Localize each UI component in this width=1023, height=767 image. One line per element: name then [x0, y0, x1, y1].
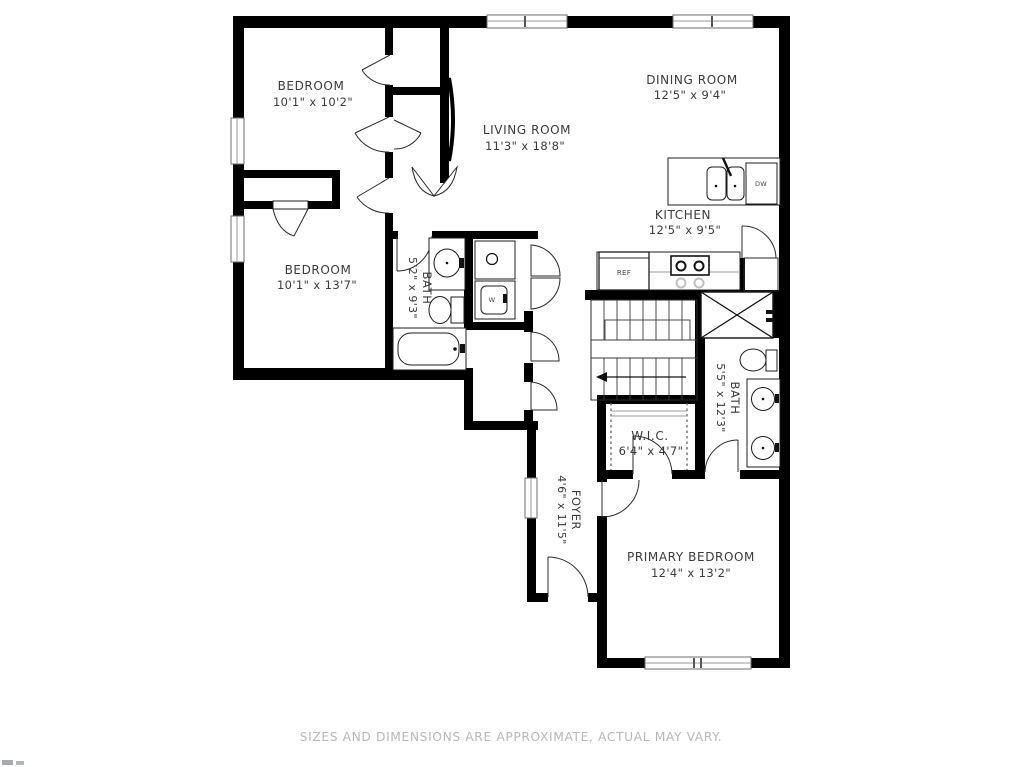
label-bedroom-middle: BEDROOM 10'1" x 13'7" [277, 263, 357, 292]
closet-door-bedroom-top [362, 55, 390, 85]
door-bedroom-middle [357, 178, 389, 213]
doors-laundry-closet [531, 245, 560, 309]
double-vanity-icon [747, 379, 780, 467]
label-bath-primary: BATH 5'5" x 12'3" [714, 363, 742, 432]
room-dims: 12'5" x 9'4" [654, 88, 726, 102]
dryer-icon [475, 241, 515, 279]
bifold-doors-hall-nook [412, 167, 457, 196]
floor-plan-svg: DW REF [0, 0, 1023, 767]
room-dims: 10'1" x 13'7" [277, 278, 357, 292]
toilet-icon [740, 349, 777, 371]
door-primary-bedroom [602, 480, 639, 517]
window-bedroom-middle [231, 216, 244, 262]
dishwasher-icon: DW [746, 163, 777, 204]
room-dims: 12'4" x 13'2" [651, 566, 731, 580]
room-dims: 6'4" x 4'7" [619, 444, 684, 458]
window-top-right [673, 15, 753, 28]
room-name: BEDROOM [278, 79, 345, 93]
room-dims: 11'3" x 18'8" [485, 139, 565, 153]
room-dims: 4'6" x 11'5" [555, 475, 568, 544]
bath-primary-fixtures [701, 292, 780, 467]
kitchen-counter: REF [597, 252, 778, 291]
refrigerator-icon: REF [599, 252, 649, 290]
corner-artifact [2, 760, 24, 765]
label-dining-room: DINING ROOM 12'5" x 9'4" [646, 73, 738, 102]
washer-icon: W [475, 281, 515, 319]
label-kitchen: KITCHEN 12'5" x 9'5" [649, 208, 721, 237]
label-wic: W.I.C. 6'4" x 4'7" [619, 429, 684, 458]
room-dims: 12'5" x 9'5" [649, 223, 721, 237]
room-name: FOYER [569, 490, 583, 530]
dishwasher-label: DW [755, 180, 767, 188]
laundry-closet: W [475, 241, 515, 319]
washer-label: W [489, 296, 496, 304]
door-hall-closet-lower [531, 382, 557, 410]
room-dims: 5'2" x 9'3" [406, 257, 419, 319]
room-dims: 10'1" x 10'2" [273, 95, 353, 109]
stair-direction-arrow-icon [596, 372, 607, 382]
disclaimer-text: SIZES AND DIMENSIONS ARE APPROXIMATE, AC… [300, 730, 723, 744]
room-name: LIVING ROOM [483, 123, 571, 137]
room-name: W.I.C. [631, 429, 668, 443]
room-name: BEDROOM [285, 263, 352, 277]
label-living-room: LIVING ROOM 11'3" x 18'8" [483, 123, 571, 153]
entry-door [548, 557, 588, 597]
room-dims: 5'5" x 12'3" [714, 363, 727, 432]
refrigerator-label: REF [617, 269, 631, 277]
floor-plan-page: DW REF [0, 0, 1023, 767]
door-pantry [742, 226, 776, 258]
room-name: BATH [420, 272, 434, 305]
shower-icon [701, 292, 775, 338]
window-bedroom-top [231, 118, 244, 164]
pantry-closet [744, 258, 778, 291]
window-primary-bedroom [645, 657, 751, 669]
closet-door-bedroom-middle [273, 201, 308, 236]
staircase [591, 300, 697, 400]
label-primary-bedroom: PRIMARY BEDROOM 12'4" x 13'2" [627, 550, 755, 580]
room-name: DINING ROOM [646, 73, 738, 87]
room-name: PRIMARY BEDROOM [627, 550, 755, 564]
bathtub-icon [393, 328, 466, 370]
room-name: BATH [728, 382, 742, 415]
door-hall-closet-upper [531, 332, 559, 361]
window-top-left [487, 15, 567, 28]
label-bedroom-top: BEDROOM 10'1" x 10'2" [273, 79, 353, 109]
wall-curve [449, 78, 453, 161]
window-foyer [525, 478, 537, 518]
kitchen-island: DW [668, 158, 780, 205]
label-foyer: FOYER 4'6" x 11'5" [555, 475, 583, 544]
room-name: KITCHEN [655, 208, 711, 222]
door-bedroom-top [355, 117, 421, 152]
door-bath-primary [705, 440, 738, 472]
